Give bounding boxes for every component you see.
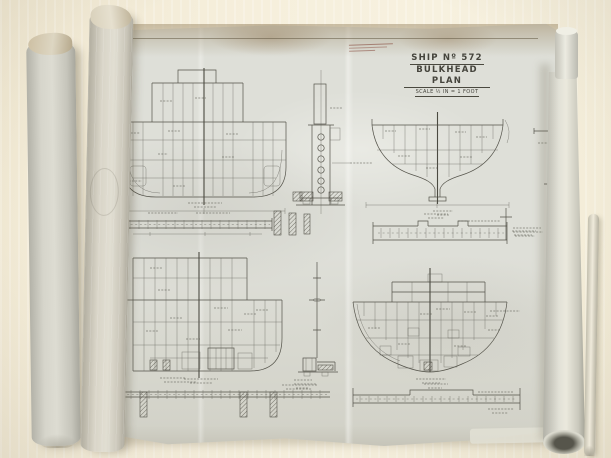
right-rolled-edge-top xyxy=(555,29,578,79)
title-scale: SCALE ½ IN = 1 FOOT xyxy=(404,88,490,97)
title-block: SHIP Nº 572 BULKHEAD PLAN SCALE ½ IN = 1… xyxy=(404,53,490,97)
stamp-text-line xyxy=(349,50,375,52)
right-rolled-edge-open-end xyxy=(543,430,585,454)
right-rolled-edge xyxy=(543,72,585,442)
roll-wrinkle xyxy=(89,168,119,217)
sheet-top-stained-edge xyxy=(116,24,558,57)
title-ship-number: SHIP Nº 572 xyxy=(404,53,490,65)
photo-scene: SHIP Nº 572 BULKHEAD PLAN SCALE ½ IN = 1… xyxy=(0,0,611,458)
title-plan-name: BULKHEAD PLAN xyxy=(404,65,490,88)
stamp-text-line xyxy=(349,46,387,49)
inspection-stamp xyxy=(349,41,393,53)
blueprint-sheet xyxy=(114,22,564,446)
thin-rolled-tube xyxy=(584,214,599,456)
rolled-drawing-left-inner xyxy=(80,10,133,453)
rolled-drawing-left-outer xyxy=(26,40,81,447)
